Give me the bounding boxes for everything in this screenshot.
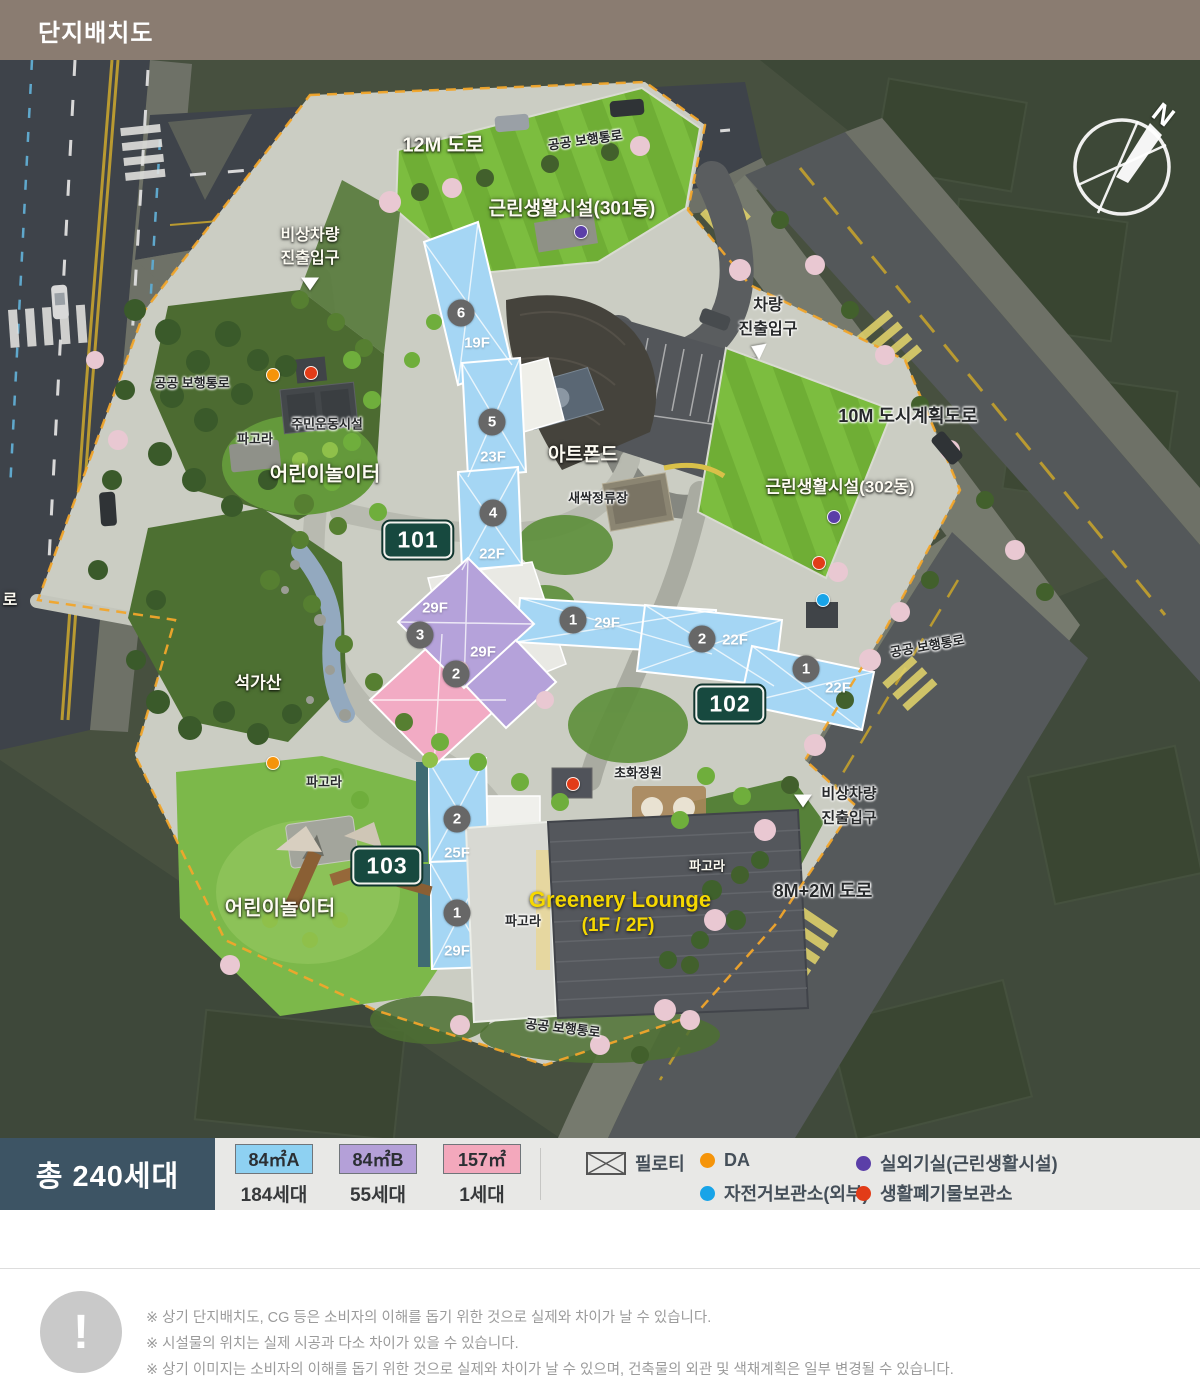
disclaimer-text: ※ 상기 단지배치도, CG 등은 소비자의 이해를 돕기 위한 것으로 실제와… xyxy=(146,1305,954,1397)
sports-facility-label: 주민운동시설 xyxy=(291,414,363,433)
legend-item-outdoor-unit: 실외기실(근린생활시설) xyxy=(856,1150,1058,1176)
sprout-stop-label: 새싹정류장 xyxy=(568,488,628,507)
legend-item-piloti: 필로티 xyxy=(586,1150,685,1176)
emergency-gate-br-label-2: 진출입구 xyxy=(821,807,876,828)
tower-floor-3-lower: 29F xyxy=(470,644,496,661)
pergola-upper-left-label: 파고라 xyxy=(237,429,273,448)
unit-type-157-count: 1세대 xyxy=(443,1180,521,1207)
disclaimer-section: ! ※ 상기 단지배치도, CG 등은 소비자의 이해를 돕기 위한 것으로 실… xyxy=(0,1268,1200,1397)
unit-type-84b: 84㎡B 55세대 xyxy=(339,1144,417,1210)
disclaimer-line-3: ※ 상기 이미지는 소비자의 이해를 돕기 위한 것으로 실제와 차이가 날 수… xyxy=(146,1357,954,1383)
tower-floor-5: 23F xyxy=(480,449,506,466)
vehicle-gate-label-2: 진출입구 xyxy=(739,315,798,339)
unit-type-84a-swatch: 84㎡A xyxy=(235,1144,313,1174)
vehicle-gate-label-1: 차량 xyxy=(753,291,782,315)
playground-lower-label: 어린이놀이터 xyxy=(225,892,335,921)
outdoor-unit-dot-icon xyxy=(856,1156,871,1171)
legend-divider xyxy=(540,1148,541,1200)
rock-garden-label: 석가산 xyxy=(235,669,282,694)
pergola-right-label: 파고라 xyxy=(689,856,725,875)
tower-circle-1-101: 1 xyxy=(560,607,587,634)
waste-dot-icon xyxy=(856,1186,871,1201)
emergency-gate-top-label-1: 비상차량 xyxy=(281,221,340,245)
unit-type-157: 157㎡ 1세대 xyxy=(443,1144,521,1210)
tower-circle-4: 4 xyxy=(480,500,507,527)
block-badge-102: 102 xyxy=(695,686,764,723)
road-label-8m: 8M+2M 도로 xyxy=(774,877,873,903)
site-plan-map: 12M 도로 공공 보행통로 근린생활시설(301동) 비상차량 진출입구 공공… xyxy=(0,60,1200,1138)
tower-circle-1-103: 1 xyxy=(444,900,471,927)
pergola-left-label: 파고라 xyxy=(306,772,342,791)
tower-circle-3: 3 xyxy=(407,622,434,649)
site-plan-page: 단지배치도 xyxy=(0,0,1200,1397)
tower-floor-2-102: 22F xyxy=(722,632,748,649)
legend-item-waste: 생활폐기물보관소 xyxy=(856,1180,1012,1206)
outdoor-unit-dot xyxy=(827,510,841,524)
greenery-lounge-label-2: (1F / 2F) xyxy=(582,915,655,937)
tower-circle-2-103: 2 xyxy=(444,806,471,833)
emergency-gate-top-label-2: 진출입구 xyxy=(281,244,340,268)
exclamation-icon: ! xyxy=(40,1291,122,1373)
greenery-lounge-label-1: Greenery Lounge xyxy=(529,887,711,913)
unit-type-list: 84㎡A 184세대 84㎡B 55세대 157㎡ 1세대 xyxy=(215,1138,521,1210)
tower-circle-2-102: 2 xyxy=(689,626,716,653)
emergency-gate-top-marker xyxy=(301,278,319,291)
unit-type-157-swatch: 157㎡ xyxy=(443,1144,521,1174)
tower-circle-5: 5 xyxy=(479,409,506,436)
tower-floor-2-103: 25F xyxy=(444,845,470,862)
unit-type-84b-swatch: 84㎡B xyxy=(339,1144,417,1174)
playground-upper-label: 어린이놀이터 xyxy=(270,458,380,487)
pergola-center-label: 파고라 xyxy=(505,911,541,930)
tower-circle-6: 6 xyxy=(448,300,475,327)
disclaimer-line-2: ※ 시설물의 위치는 실제 시공과 다소 차이가 있을 수 있습니다. xyxy=(146,1331,954,1357)
facility-301-label: 근린생활시설(301동) xyxy=(489,194,656,221)
da-dot xyxy=(266,756,280,770)
tower-circle-2-101: 2 xyxy=(443,661,470,688)
tower-circle-1-102: 1 xyxy=(793,656,820,683)
tower-floor-3-upper: 29F xyxy=(422,600,448,617)
road-label-10m: 10M 도시계획도로 xyxy=(838,402,977,428)
facility-302-label: 근린생활시설(302동) xyxy=(765,473,914,498)
legend-item-bicycle: 자전거보관소(외부) xyxy=(700,1180,868,1206)
legend-item-da: DA xyxy=(700,1150,750,1171)
unit-type-84a: 84㎡A 184세대 xyxy=(235,1144,313,1210)
waste-dot xyxy=(812,556,826,570)
tower-floor-1-103: 29F xyxy=(444,943,470,960)
art-pond-label: 아트폰드 xyxy=(548,440,618,467)
flower-garden-label: 초화정원 xyxy=(614,763,662,782)
unit-type-84a-count: 184세대 xyxy=(235,1180,313,1207)
block-badge-103: 103 xyxy=(352,848,421,885)
bicycle-dot-icon xyxy=(700,1186,715,1201)
waste-dot xyxy=(304,366,318,380)
outdoor-unit-dot xyxy=(574,225,588,239)
waste-dot xyxy=(566,777,580,791)
page-header: 단지배치도 xyxy=(0,0,1200,60)
tower-floor-1-101: 29F xyxy=(594,615,620,632)
piloti-hatch-icon xyxy=(586,1152,626,1175)
disclaimer-line-1: ※ 상기 단지배치도, CG 등은 소비자의 이해를 돕기 위한 것으로 실제와… xyxy=(146,1305,954,1331)
tower-floor-1-102: 22F xyxy=(825,680,851,697)
bicycle-dot xyxy=(816,593,830,607)
tower-floor-6: 19F xyxy=(464,335,490,352)
da-dot-icon xyxy=(700,1153,715,1168)
da-dot xyxy=(266,368,280,382)
legend-bar: 총 240세대 84㎡A 184세대 84㎡B 55세대 157㎡ 1세대 필로… xyxy=(0,1138,1200,1210)
tower-floor-4: 22F xyxy=(479,546,505,563)
block-badge-101: 101 xyxy=(383,522,452,559)
total-households-badge: 총 240세대 xyxy=(0,1138,215,1210)
spacer xyxy=(0,1210,1200,1268)
emergency-gate-br-marker xyxy=(794,795,812,808)
site-plan-rendering xyxy=(0,60,1200,1138)
unit-type-84b-count: 55세대 xyxy=(339,1180,417,1207)
road-label-12m: 12M 도로 xyxy=(402,129,483,158)
public-walkway-label-left: 공공 보행통로 xyxy=(154,373,229,392)
road-label-left-partial: 로 xyxy=(3,586,18,610)
emergency-gate-br-label-1: 비상차량 xyxy=(821,783,876,804)
page-title: 단지배치도 xyxy=(38,13,153,48)
